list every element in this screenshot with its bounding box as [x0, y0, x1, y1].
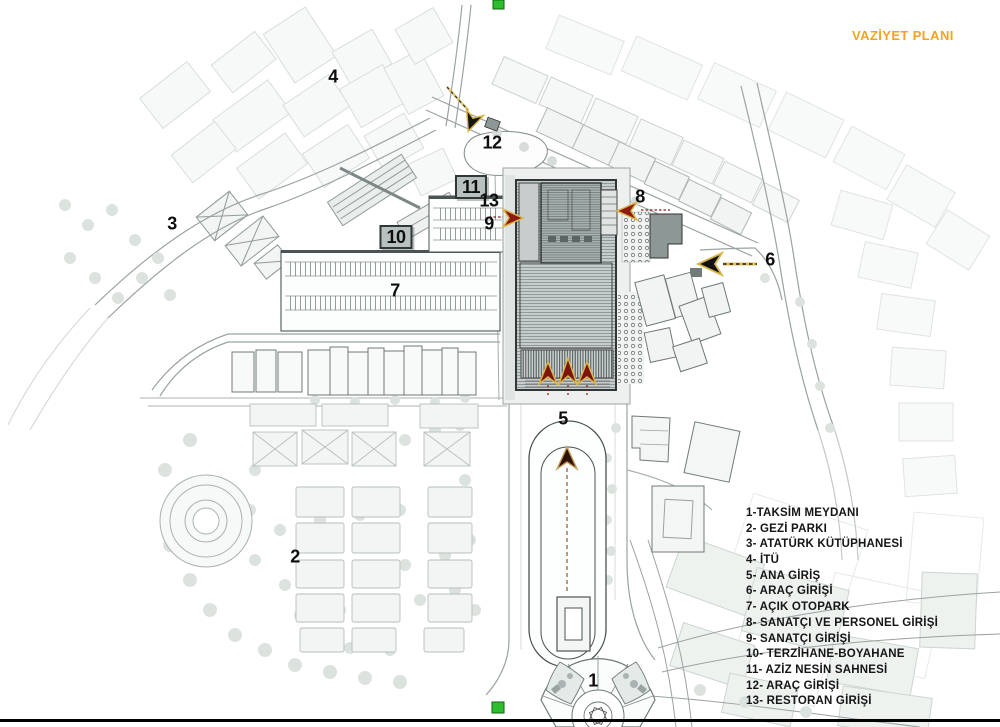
legend-item-13: 13- RESTORAN GİRİŞİ — [746, 694, 938, 710]
green-marker-bottom — [492, 702, 504, 713]
upper-parking-9 — [429, 196, 506, 252]
buildings-east-of-akm — [635, 272, 731, 371]
legend-item-9: 9- SANATÇI GİRİŞİ — [746, 632, 938, 648]
green-marker-top — [493, 0, 504, 9]
legend-item-1: 1-TAKSİM MEYDANI — [746, 506, 938, 522]
akm-stairs-annex — [601, 190, 617, 235]
site-plan-canvas: 12345678910111213 VAZİYET PLANI 1-TAKSİM… — [0, 0, 1000, 727]
legend-item-6: 6- ARAÇ GİRİŞİ — [746, 584, 938, 600]
legend-item-4: 4- İTÜ — [746, 553, 938, 569]
building-row-south-of-parking — [232, 346, 476, 395]
legend-item-8: 8- SANATÇI VE PERSONEL GİRİŞİ — [746, 616, 938, 632]
monument-plinth — [557, 597, 590, 651]
park-fountain — [160, 475, 252, 567]
legend-item-12: 12- ARAÇ GİRİŞİ — [746, 679, 938, 695]
bottom-rule — [0, 719, 1000, 722]
legend-item-5: 5- ANA GİRİŞ — [746, 569, 938, 585]
plan-title: VAZİYET PLANI — [852, 28, 954, 43]
open-parking-7 — [281, 250, 500, 331]
entrance-arrow-6-icon — [698, 253, 757, 275]
legend-item-7: 7- AÇIK OTOPARK — [746, 600, 938, 616]
legend-item-10: 10- TERZİHANE-BOYAHANE — [746, 647, 938, 663]
legend-item-2: 2- GEZİ PARKI — [746, 522, 938, 538]
legend-item-11: 11- AZİZ NESİN SAHNESİ — [746, 663, 938, 679]
taksim-square — [541, 656, 655, 727]
legend-list: 1-TAKSİM MEYDANI2- GEZİ PARKI3- ATATÜRK … — [746, 506, 938, 710]
legend-item-3: 3- ATATÜRK KÜTÜPHANESİ — [746, 537, 938, 553]
buildings-east-of-boulevard — [632, 416, 740, 552]
